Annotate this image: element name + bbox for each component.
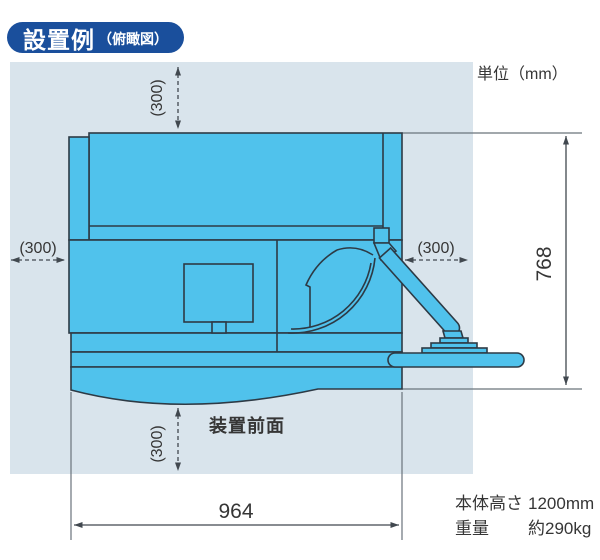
operation-tray [388,353,524,367]
spec-row-height: 本体高さ 1200mm [455,491,594,516]
spec-weight-value: 約290kg [528,516,591,541]
title-badge-text: 設置例 [23,21,95,55]
title-badge: 設置例 （俯瞰図） [7,22,184,53]
dim-front-clearance-label: (300) [149,425,166,462]
spec-list: 本体高さ 1200mm 重量 約290kg [455,491,594,541]
spec-row-weight: 重量 約290kg [455,516,594,541]
dim-depth-label: 768 [533,246,556,281]
operator-unit [184,264,253,322]
unit-label: 単位（mm） [477,60,568,84]
machine-front-band-1 [71,333,402,352]
dim-right-clearance-label: (300) [417,240,454,257]
dim-width-label: 964 [218,500,253,523]
operator-unit-tab [212,322,226,333]
machine-rear-unit [89,133,402,240]
arm-pivot-post [374,228,389,243]
spec-height-label: 本体高さ [455,491,528,516]
device-front-label: 装置前面 [209,412,285,438]
machine-front-band-2 [71,352,402,367]
spec-height-value: 1200mm [528,491,594,516]
arm-collar [443,331,463,338]
machine-left-column [69,137,89,240]
diagram-canvas: (300) (300) (300) (300) 768 964 [0,0,600,560]
installation-diagram: (300) (300) (300) (300) 768 964 設置例 （俯瞰図… [0,0,600,560]
dim-left-clearance-label: (300) [19,240,56,257]
title-badge-subtext: （俯瞰図） [98,29,168,49]
spec-weight-label: 重量 [455,516,528,541]
dim-top-clearance-label: (300) [149,79,166,116]
